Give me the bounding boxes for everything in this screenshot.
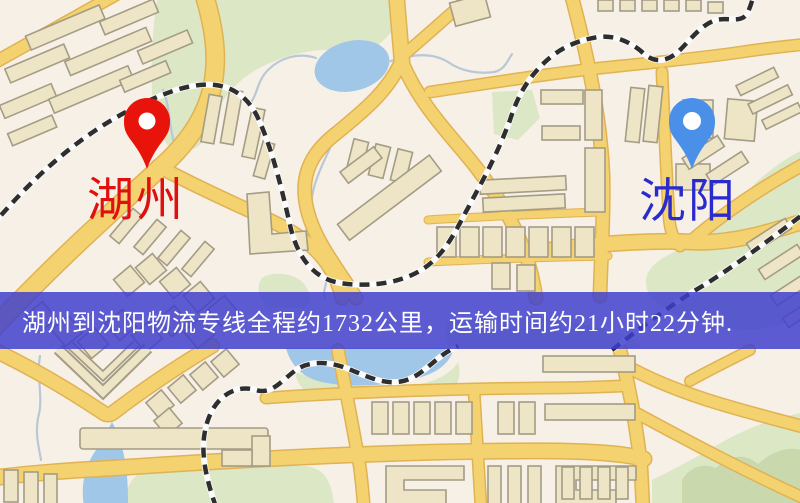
route-info-banner: 湖州到沈阳物流专线全程约1732公里，运输时间约21小时22分钟. bbox=[0, 292, 800, 349]
origin-label: 湖州 bbox=[87, 175, 185, 227]
destination-pin-hole bbox=[683, 112, 701, 130]
destination-label: 沈阳 bbox=[639, 176, 737, 228]
map-canvas[interactable]: 湖州 沈阳 bbox=[0, 0, 800, 503]
map-view: 湖州 沈阳 湖州到沈阳物流专线全程约1732公里，运输时间约21小时22分钟. bbox=[0, 0, 800, 503]
route-info-text: 湖州到沈阳物流专线全程约1732公里，运输时间约21小时22分钟. bbox=[22, 303, 733, 338]
origin-pin-hole bbox=[139, 113, 156, 130]
